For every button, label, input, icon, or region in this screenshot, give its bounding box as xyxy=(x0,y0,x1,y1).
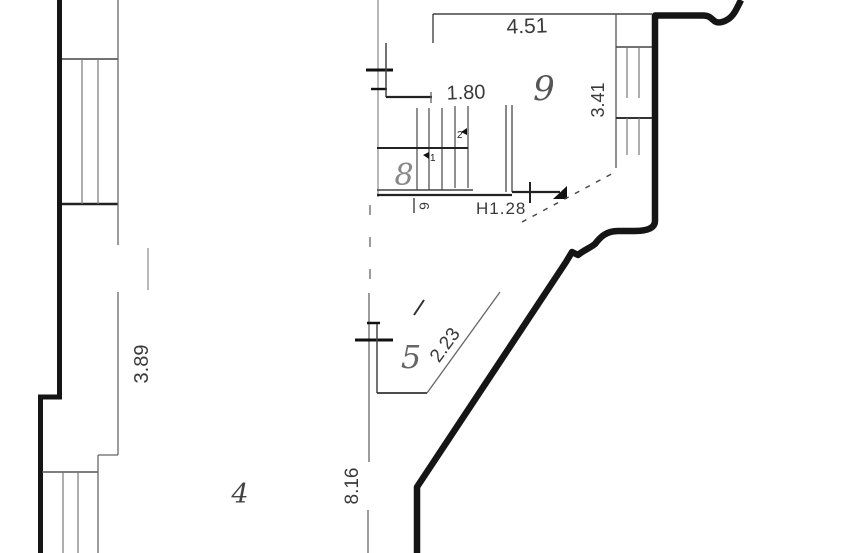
dimension-label-341: 3.41 xyxy=(588,82,608,117)
flight-arrow-icon xyxy=(423,152,429,159)
floor-plan-page: 4.51 1.80 9 3.41 8 9 H1.28 3.89 5 2.23 8… xyxy=(0,0,844,553)
right-window-upper xyxy=(616,47,652,98)
left-window-upper xyxy=(62,0,118,245)
room-label-5: 5 xyxy=(401,338,421,376)
stair-flight-mark-2: 2 xyxy=(457,128,467,141)
left-window-lower xyxy=(42,455,118,553)
flight-number: 1 xyxy=(430,153,436,164)
dimension-label-180: 1.80 xyxy=(446,81,486,104)
room-label-9: 9 xyxy=(533,69,555,109)
right-window-lower xyxy=(616,118,652,155)
stair-flight-mark-1: 1 xyxy=(423,152,436,164)
dimension-label-223: 2.23 xyxy=(426,324,465,366)
dimension-label-389: 3.89 xyxy=(131,345,153,384)
room-label-8: 8 xyxy=(394,158,413,193)
left-exterior-wall xyxy=(41,0,60,553)
opening-mark-label: 9 xyxy=(416,202,432,210)
floor-plan-canvas: 4.51 1.80 9 3.41 8 9 H1.28 3.89 5 2.23 8… xyxy=(0,0,844,553)
door-swing-dashed-line xyxy=(522,171,617,222)
flight-number: 2 xyxy=(457,130,463,141)
dimension-label-816: 8.16 xyxy=(342,468,363,505)
dimension-label-451: 4.51 xyxy=(506,14,548,38)
dimension-label-128: H1.28 xyxy=(476,199,526,218)
room-label-4: 4 xyxy=(230,479,248,510)
diagonal-dimension-tick xyxy=(414,300,424,315)
